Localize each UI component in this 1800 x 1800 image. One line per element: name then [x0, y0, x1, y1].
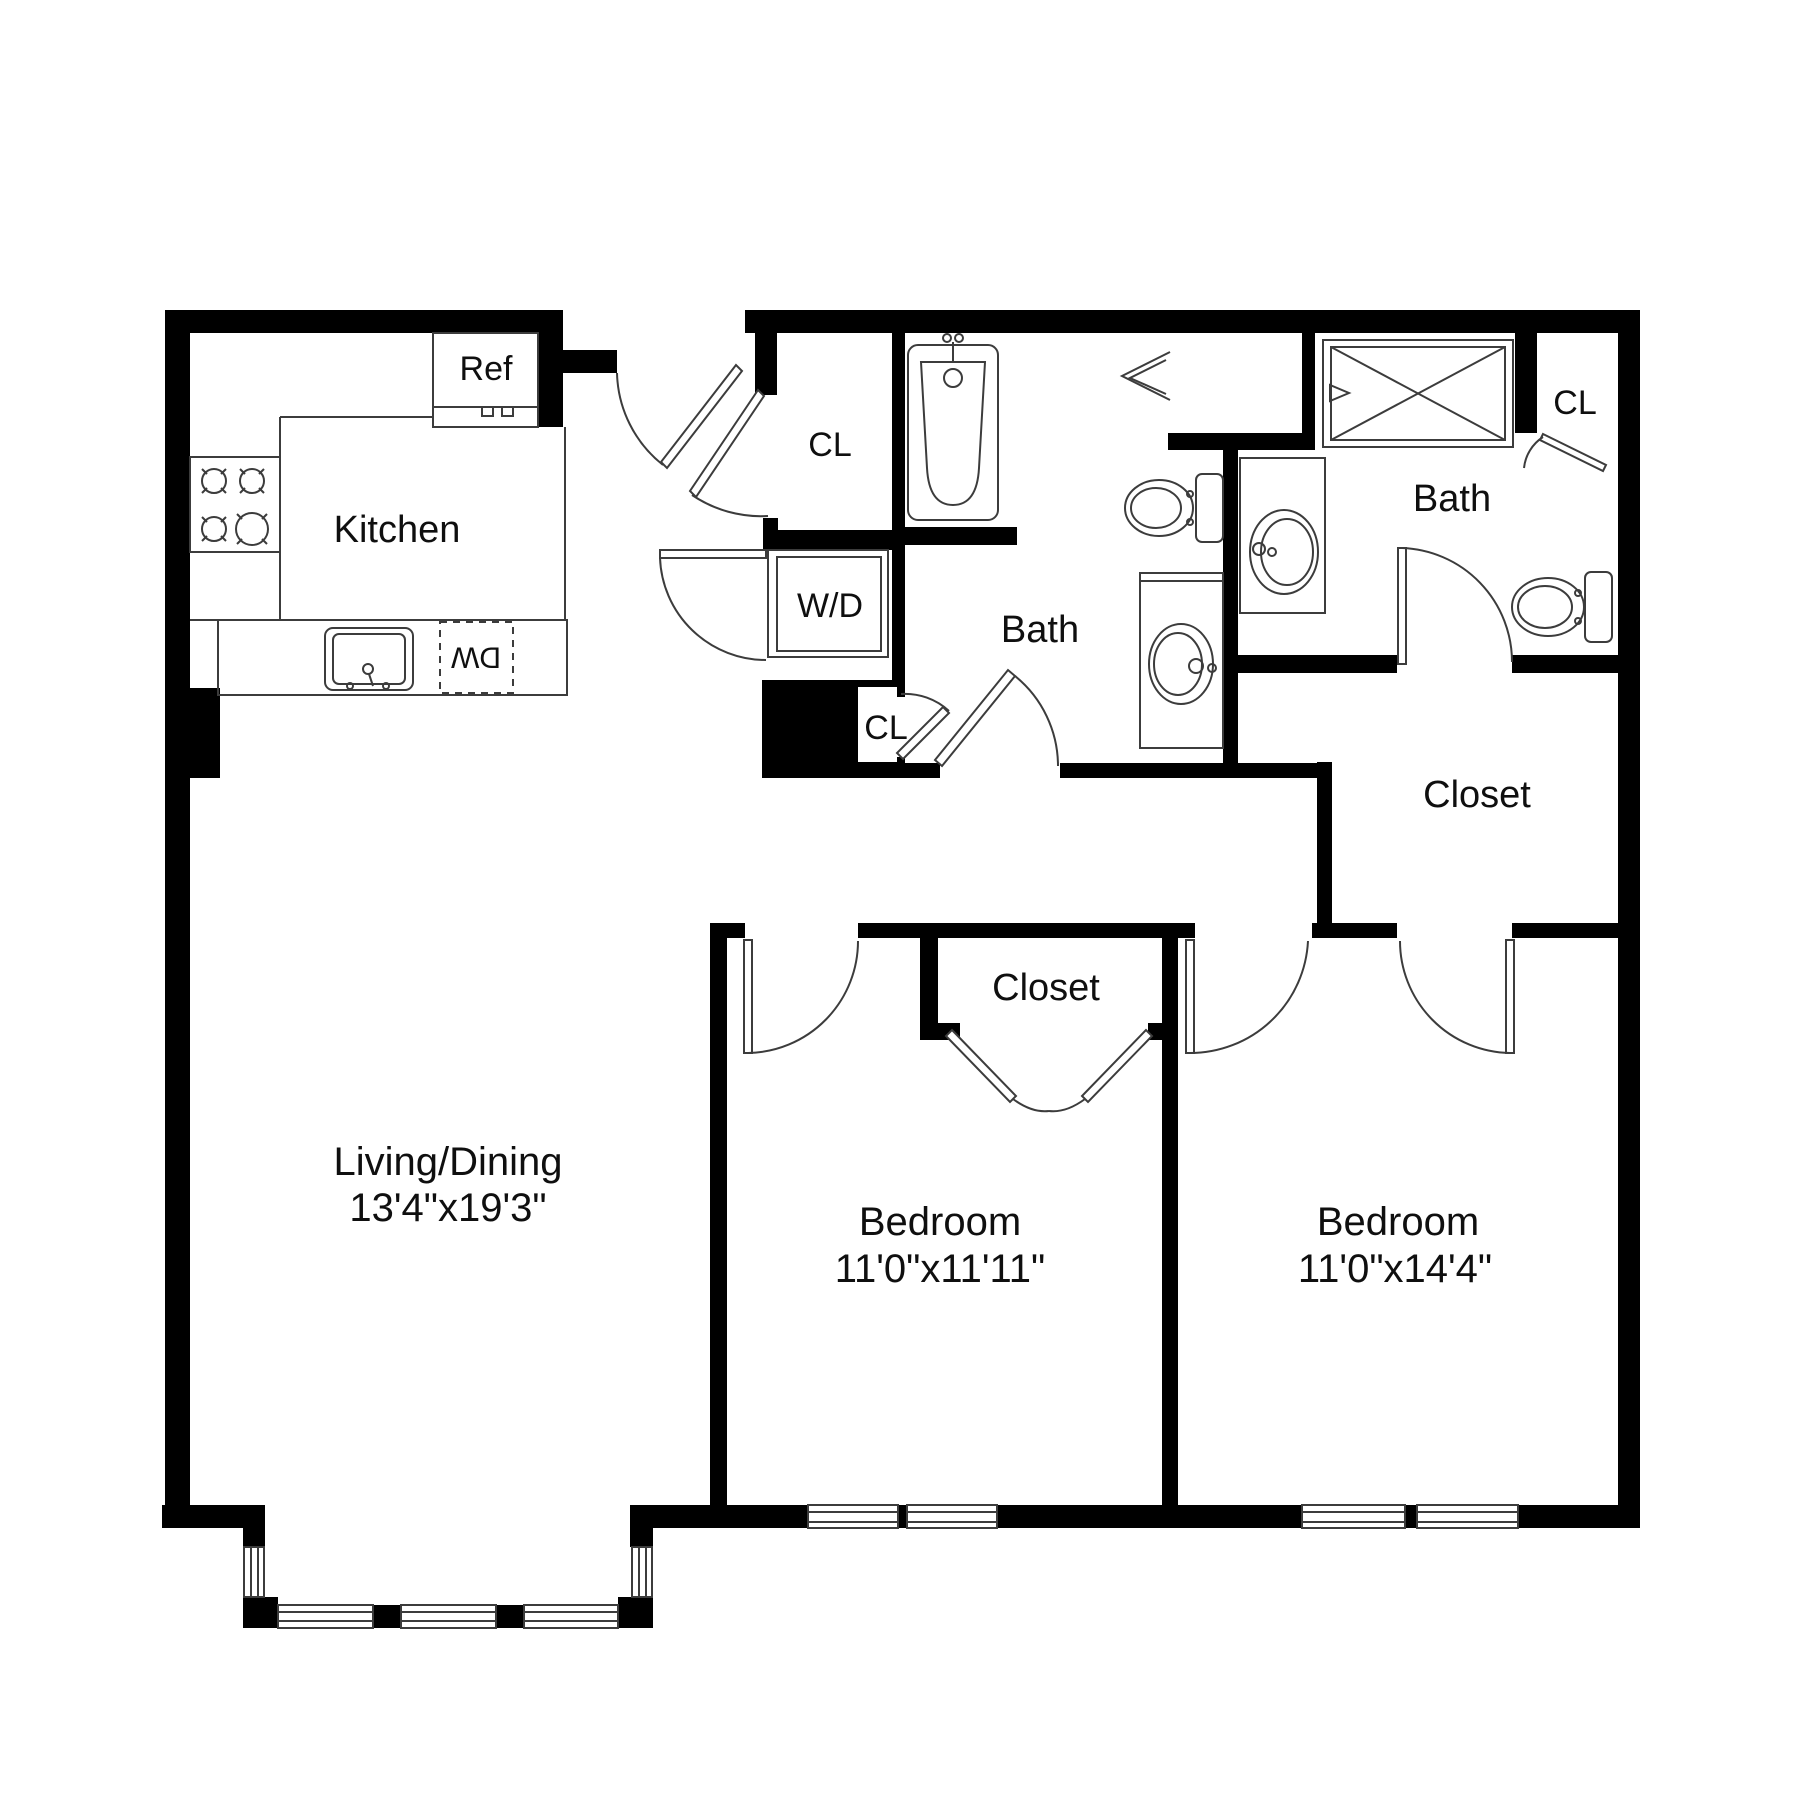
wall-bed2-top-left — [1312, 923, 1397, 938]
wall-cl-wd-divider — [763, 530, 905, 550]
bay-post-right-top — [630, 1528, 653, 1547]
windows — [244, 1505, 1518, 1628]
refrigerator-label: Ref — [460, 350, 513, 388]
dishwasher-label: DW — [450, 641, 501, 674]
bedroom1-closet-doors-icon — [946, 1030, 1152, 1111]
bay-post-1 — [373, 1605, 401, 1628]
bath-right-label: Bath — [1413, 478, 1491, 520]
bath-closet-label: CL — [1553, 384, 1596, 422]
toilet-icon-2 — [1512, 572, 1612, 642]
wall-bed1-closet-left — [920, 938, 938, 1023]
bedroom1-window-1 — [808, 1505, 898, 1528]
shower-icon — [1323, 340, 1513, 447]
bath-right-door-icon — [1398, 548, 1512, 664]
living-dining-label: Living/Dining — [333, 1140, 562, 1184]
floor-plan-canvas: Ref Kitchen CL W/D DW Bath CL Bath CL Cl… — [0, 0, 1800, 1800]
bath-closet-door-icon — [1524, 434, 1606, 471]
bedroom2-dims: 11'0"x14'4" — [1298, 1247, 1492, 1291]
wall-bottom-post-bed2 — [1405, 1505, 1417, 1528]
wall-between-bedrooms — [1162, 938, 1178, 1505]
bay-window-3 — [524, 1605, 618, 1628]
bedroom2-door-icon — [1186, 940, 1308, 1053]
bedroom1-dims: 11'0"x11'11" — [835, 1247, 1046, 1291]
living-dining-dims: 13'4"x19'3" — [349, 1186, 546, 1230]
bedroom2-window-2 — [1417, 1505, 1518, 1528]
bay-corner-right — [618, 1597, 653, 1628]
bay-window-side-left — [244, 1547, 264, 1597]
wall-top-left — [165, 310, 563, 333]
wall-entry-jamb-right — [755, 333, 777, 395]
wall-bedrooms-top — [858, 923, 1195, 938]
bedroom1-label: Bedroom — [859, 1200, 1021, 1244]
linen-bifold-door-icon — [1122, 352, 1170, 400]
wall-top-right — [745, 310, 1640, 333]
bedroom1-door-icon — [744, 940, 858, 1053]
hall-closet-label: CL — [864, 709, 907, 747]
walkin-closet-door-icon — [1400, 940, 1514, 1053]
wall-closet-left — [1317, 762, 1332, 923]
wall-bottom-mid — [997, 1505, 1302, 1528]
wall-left-stub — [165, 688, 220, 778]
wall-bottom-living — [630, 1505, 808, 1528]
bay-corner-left — [243, 1597, 278, 1628]
wall-bottom-right — [1518, 1505, 1640, 1528]
kitchen-fixtures — [190, 333, 888, 695]
bedroom2-window-1 — [1302, 1505, 1405, 1528]
wall-hall-band-right — [1060, 763, 1332, 778]
wall-bath2-bottom-right — [1512, 655, 1640, 673]
vanity-sink-icon — [1140, 573, 1223, 748]
toilet-icon — [1125, 474, 1223, 542]
wall-linen-right — [1302, 333, 1315, 450]
laundry-door-icon — [660, 550, 766, 660]
bay-window-2 — [401, 1605, 496, 1628]
wall-bath1-left — [892, 333, 905, 680]
wall-right — [1618, 310, 1640, 1528]
entry-closet-label: CL — [808, 426, 851, 464]
wall-bed2-top-right — [1512, 923, 1640, 938]
bay-post-2 — [496, 1605, 524, 1628]
bedroom1-closet-label: Closet — [992, 967, 1100, 1009]
wall-bath2-bottom-left — [1238, 655, 1397, 673]
bath-center-door-icon — [935, 670, 1058, 766]
vanity-sink-icon-2 — [1240, 458, 1325, 613]
bay-post-left-top — [243, 1528, 265, 1547]
wall-hall-band-left — [905, 763, 940, 778]
stove-icon — [190, 457, 280, 552]
bay-window-side-right — [632, 1547, 652, 1597]
washer-dryer-label: W/D — [797, 587, 863, 625]
wall-bottom-left — [162, 1505, 265, 1528]
wall-bed1-left — [710, 923, 727, 1505]
bath-center-label: Bath — [1001, 609, 1079, 651]
wall-tub-foot — [905, 527, 1017, 545]
bathtub-icon — [908, 334, 998, 520]
wall-linen-bottom — [1168, 433, 1315, 450]
wall-ref-side — [538, 333, 563, 427]
floor-plan-page: Ref Kitchen CL W/D DW Bath CL Bath CL Cl… — [0, 0, 1800, 1800]
bay-window-1 — [278, 1605, 373, 1628]
kitchen-sink-icon — [325, 628, 413, 690]
walkin-closet-label: Closet — [1423, 774, 1531, 816]
kitchen-label: Kitchen — [334, 509, 461, 551]
wall-left — [165, 310, 190, 1506]
wall-bath-divider — [1223, 448, 1238, 763]
wall-bottom-post-bed1 — [898, 1505, 907, 1528]
wall-entry-sill — [563, 350, 617, 373]
wall-clbath-left — [1515, 333, 1537, 433]
bedroom2-label: Bedroom — [1317, 1200, 1479, 1244]
bedroom1-window-2 — [907, 1505, 997, 1528]
